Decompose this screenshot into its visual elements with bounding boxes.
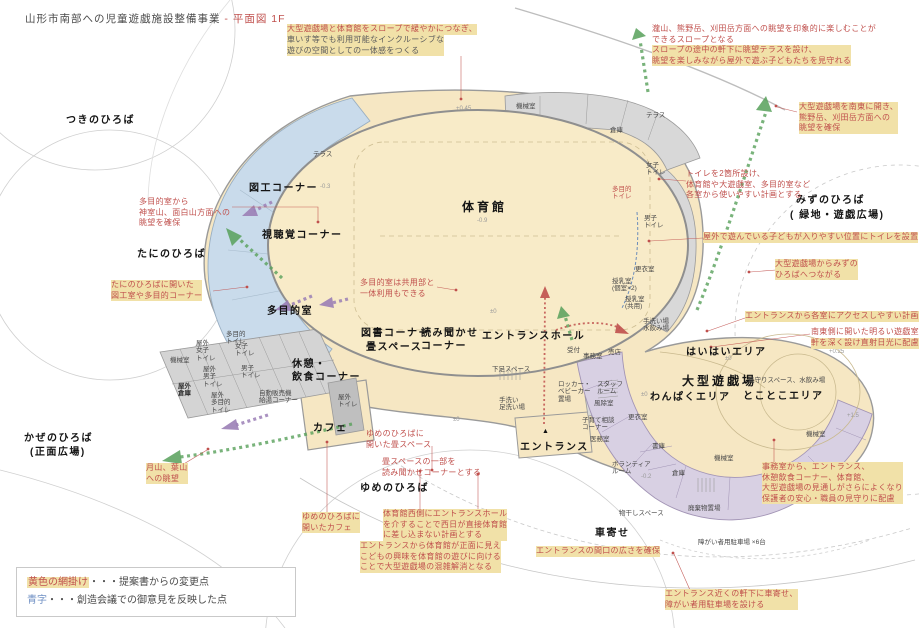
- room-av-label: 視聴覚コーナー: [262, 229, 343, 242]
- level-marker: +0.45: [456, 106, 471, 112]
- outdoor-storage-label: 屋外 倉庫: [178, 383, 191, 398]
- legend-yellow-text: ・・・提案書からの変更点: [89, 577, 209, 588]
- outdoor-wc-accessible-label: 屋外 多目的 トイレ: [211, 392, 231, 414]
- note-multi-room-view: 多目的室から 神室山、面白山方面への 眺望を確保: [139, 197, 230, 229]
- nursing-room-shared-label: 授乳室 (共用): [625, 296, 645, 311]
- note-deep-eaves: 軒を深く設け直射日光に配慮: [811, 338, 919, 349]
- plaza-tsuki-label: つきのひろば: [66, 114, 135, 127]
- room-entrance-hall-label: エントランスホール: [482, 330, 585, 343]
- windbreak-room-label: 風除室: [594, 400, 614, 407]
- note-mountain-view-slope: 瀧山、熊野岳、刈田岳方面への眺望を印象的に楽しむことが できるスロープとなる: [652, 24, 876, 45]
- wc-women2-label: 女子 トイレ: [235, 343, 255, 358]
- room-gym-label: 体育館: [462, 200, 507, 216]
- note-reading-corner: 畳スペースの一部を 読み聞かせコーナーとする: [382, 457, 481, 478]
- note-inclusive-play: 車いす等でも利用可能なインクルーシブな 遊びの空間としての一体感をつくる: [287, 35, 444, 56]
- mech-room-west-label: 機械室: [170, 357, 190, 364]
- note-gym-visible: エントランスから体育館が正面に見え こどもの興味を体育館の遊びに向ける ことで大…: [360, 541, 501, 573]
- legend-box: 黄色の網掛け・・・提案書からの変更点 青字・・・創造会議での御意見を反映した点: [16, 567, 296, 617]
- handwash-fountain-label: 手洗い場 水飲み場: [643, 318, 669, 333]
- wc-men2-label: 男子 トイレ: [241, 365, 261, 380]
- note-entrance-width: エントランスの間口の広さを確保: [536, 546, 660, 557]
- plaza-kaze-label: かぜのひろば: [24, 432, 93, 445]
- nursing-room-private-label: 授乳室 (個室×2): [612, 278, 637, 293]
- legend-blue-text: ・・・創造会議での御意見を反映した点: [47, 595, 227, 606]
- shoe-space-label: 下足スペース: [492, 366, 530, 373]
- area-wanpaku-label: わんぱくエリア: [650, 391, 731, 404]
- note-two-toilets: トイレを2箇所設け、 体育館や大遊戯室、多目的室など 各室から使いやすい計画とす…: [686, 169, 811, 201]
- book-storage-label: 書庫: [652, 443, 665, 450]
- note-bright-playroom: 南東側に開いた明るい遊戯室: [811, 327, 919, 338]
- room-mech-top-label: 機械室: [516, 103, 536, 110]
- plaza-kaze-sub-label: (正面広場): [30, 446, 86, 459]
- floor-plan-page: 山形市南部への児童遊戯施設整備事業 - 平面図 1F つきのひろば たにのひろば…: [0, 0, 920, 628]
- staff-room-label: スタッフ ルーム: [597, 381, 623, 396]
- vending-corner-label: 自動販売機 給湯コーナー: [259, 390, 298, 405]
- project-title: 山形市南部への児童遊戯施設整備事業: [25, 13, 221, 25]
- room-reading-label: 読み聞かせ コーナー: [421, 327, 479, 353]
- outdoor-wc-label: 屋外 トイレ: [338, 394, 358, 409]
- shop-label: 売店: [608, 349, 621, 356]
- level-marker: ±0: [490, 309, 497, 315]
- changing-room2-label: 更衣室: [628, 414, 648, 421]
- room-rest-label: 休憩・ 飲食コーナー: [292, 358, 361, 384]
- note-multi-shared-use: 多目的室は共用部と 一体利用もできる: [360, 278, 435, 299]
- note-slope-connect: 大型遊戯場と体育館をスロープで緩やかにつなぎ、: [287, 24, 477, 35]
- drawing-number: - 平面図 1F: [224, 13, 285, 25]
- room-play-area-label: 大型遊戯場: [682, 374, 757, 390]
- room-cafe-label: カフェ: [313, 422, 348, 435]
- note-gassan-view: 月山、葉山 への眺望: [146, 463, 188, 484]
- entrance-arrow-marker: ▲: [542, 428, 549, 435]
- terrace-nw-label: テラス: [313, 151, 332, 158]
- terrace-ne-label: テラス: [646, 112, 665, 119]
- wc-accessible-label: 多目的 トイレ: [612, 186, 632, 201]
- changing-room-label: 更衣室: [635, 266, 655, 273]
- plaza-mizu-sub-label: ( 緑地・遊戯広場): [790, 209, 884, 222]
- storage2-label: 倉庫: [672, 470, 685, 477]
- level-marker: ±0: [453, 417, 460, 423]
- hand-foot-wash-label: 手洗い 足洗い場: [499, 397, 525, 412]
- outdoor-wc-women-label: 屋外 女子 トイレ: [196, 340, 216, 362]
- legend-yellow-key: 黄色の網掛け: [27, 577, 89, 588]
- note-tatami-open: ゆめのひろばに 開いた畳スペース: [366, 429, 431, 450]
- room-tatami-label: 畳スペース: [366, 341, 422, 354]
- level-marker: -0.3: [320, 184, 330, 190]
- level-marker: +1.5: [847, 413, 859, 419]
- note-tani-open: たにのひろばに開いた 図工室や多目的コーナー: [111, 280, 202, 301]
- plaza-tani-label: たにのひろば: [137, 248, 206, 261]
- level-marker: ±0: [641, 392, 648, 398]
- legend-line-blue: 青字・・・創造会議での御意見を反映した点: [27, 592, 285, 610]
- accessible-parking-label: 障がい者用駐車場 ×6台: [698, 539, 766, 546]
- outdoor-wc-men-label: 屋外 男子 トイレ: [203, 366, 223, 388]
- note-office-sightlines: 事務室から、エントランス、 休憩飲食コーナー、体育館、 大型遊戯場の見通しがさら…: [762, 462, 903, 504]
- level-marker: +0.25: [829, 349, 844, 355]
- note-access-from-entrance: エントランスから各室にアクセスしやすい計画: [745, 311, 919, 322]
- waste-storage-label: 廃棄物置場: [688, 505, 721, 512]
- level-marker: -0.2: [641, 474, 651, 480]
- drop-off-label: 車寄せ: [595, 527, 630, 540]
- plaza-yume-label: ゆめのひろば: [360, 482, 429, 495]
- note-connect-mizu: 大型遊戯場からみずの ひろばへつながる: [775, 259, 858, 280]
- note-southeast-view: 大型遊戯場を南東に開き、 熊野岳、刈田岳方面への 眺望を確保: [799, 102, 898, 134]
- medical-room-label: 医務室: [590, 436, 610, 443]
- note-toilet-position: 屋外で遊んでいる子どもが入りやすい位置にトイレを設置: [703, 232, 918, 243]
- note-view-terrace: スロープの途中の軒下に眺望テラスを設け、 眺望を楽しみながら屋外で遊ぶ子どもたち…: [652, 45, 851, 66]
- level-marker: -0.9: [477, 218, 487, 224]
- wc-men-label: 男子 トイレ: [644, 215, 664, 230]
- reception-label: 受付: [567, 347, 580, 354]
- office-label: 事務室: [583, 353, 603, 360]
- wc-women-label: 女子 トイレ: [646, 162, 666, 177]
- level-marker: ±0: [725, 356, 732, 362]
- room-multi-label: 多目的室: [267, 305, 313, 318]
- page-title: 山形市南部への児童遊戯施設整備事業 - 平面図 1F: [25, 11, 286, 26]
- room-library-label: 図書コーナー: [361, 327, 430, 340]
- childcare-consult-label: 子育て相談 コーナー: [582, 417, 615, 432]
- legend-line-yellow: 黄色の網掛け・・・提案書からの変更点: [27, 574, 285, 592]
- room-storage-top-label: 倉庫: [610, 127, 623, 134]
- mech-room-south-label: 機械室: [714, 455, 734, 462]
- note-west-sun: 体育館西側にエントランスホール を介することで西日が直接体育館 に差し込まない計…: [383, 509, 507, 541]
- locker-stroller-label: ロッカー・ ベビーカー 置場: [558, 381, 591, 403]
- note-cafe-open: ゆめのひろばに 開いたカフェ: [302, 512, 360, 533]
- laundry-space-label: 物干しスペース: [619, 510, 664, 517]
- mech-room-east-label: 機械室: [806, 431, 826, 438]
- note-drop-off-parking: エントランス近くの軒下に車寄せ、 障がい者用駐車場を設ける: [665, 589, 798, 610]
- entrance-label: エントランス: [520, 441, 589, 454]
- area-totokoto-label: とことこエリア: [743, 390, 824, 403]
- room-craft-label: 図工コーナー: [249, 182, 318, 195]
- legend-blue-key: 青字: [27, 595, 47, 606]
- watch-space-label: 見守りスペース、水飲み場: [748, 377, 825, 384]
